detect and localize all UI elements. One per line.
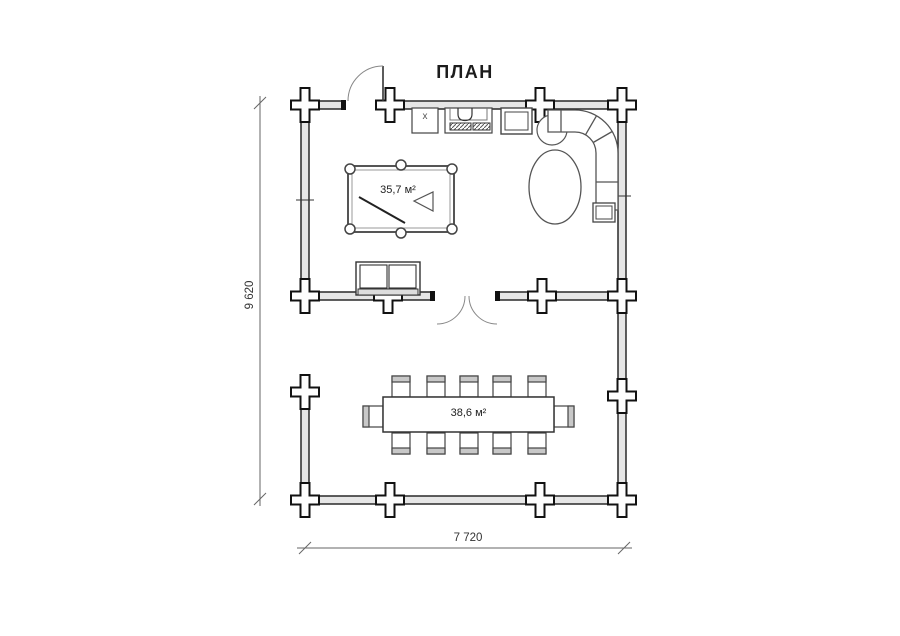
chair xyxy=(493,376,511,397)
height-dimension-label: 9 620 xyxy=(244,267,258,323)
sink-stove-unit xyxy=(445,108,492,133)
chair xyxy=(427,433,445,454)
entrance-door xyxy=(348,66,383,101)
floor-plan-page: ПЛАН 35,7 м² 38,6 м² x 9 620 7 720 xyxy=(0,0,900,636)
wall-bottom xyxy=(293,496,635,504)
width-dimension-label: 7 720 xyxy=(430,532,506,544)
side-table xyxy=(593,203,615,222)
double-door xyxy=(437,296,497,324)
billiard-table xyxy=(345,160,457,238)
stove-burners-left xyxy=(450,123,471,130)
chair xyxy=(554,406,574,427)
chair xyxy=(460,376,478,397)
chair xyxy=(392,433,410,454)
lower-room-area-label: 38,6 м² xyxy=(398,407,539,419)
plan-title: ПЛАН xyxy=(420,62,510,83)
kitchen-sink-label: x xyxy=(412,111,438,122)
oval-table xyxy=(529,150,581,224)
chair xyxy=(363,406,383,427)
chair xyxy=(528,376,546,397)
stove-burners-right xyxy=(473,123,490,130)
chair xyxy=(493,433,511,454)
upper-room-area-label: 35,7 м² xyxy=(368,184,428,196)
chair xyxy=(427,376,445,397)
wall-middle-right xyxy=(499,292,626,300)
two-seat-sofa xyxy=(356,262,420,295)
fridge xyxy=(501,108,532,134)
chair xyxy=(392,376,410,397)
chair xyxy=(460,433,478,454)
chair xyxy=(528,433,546,454)
